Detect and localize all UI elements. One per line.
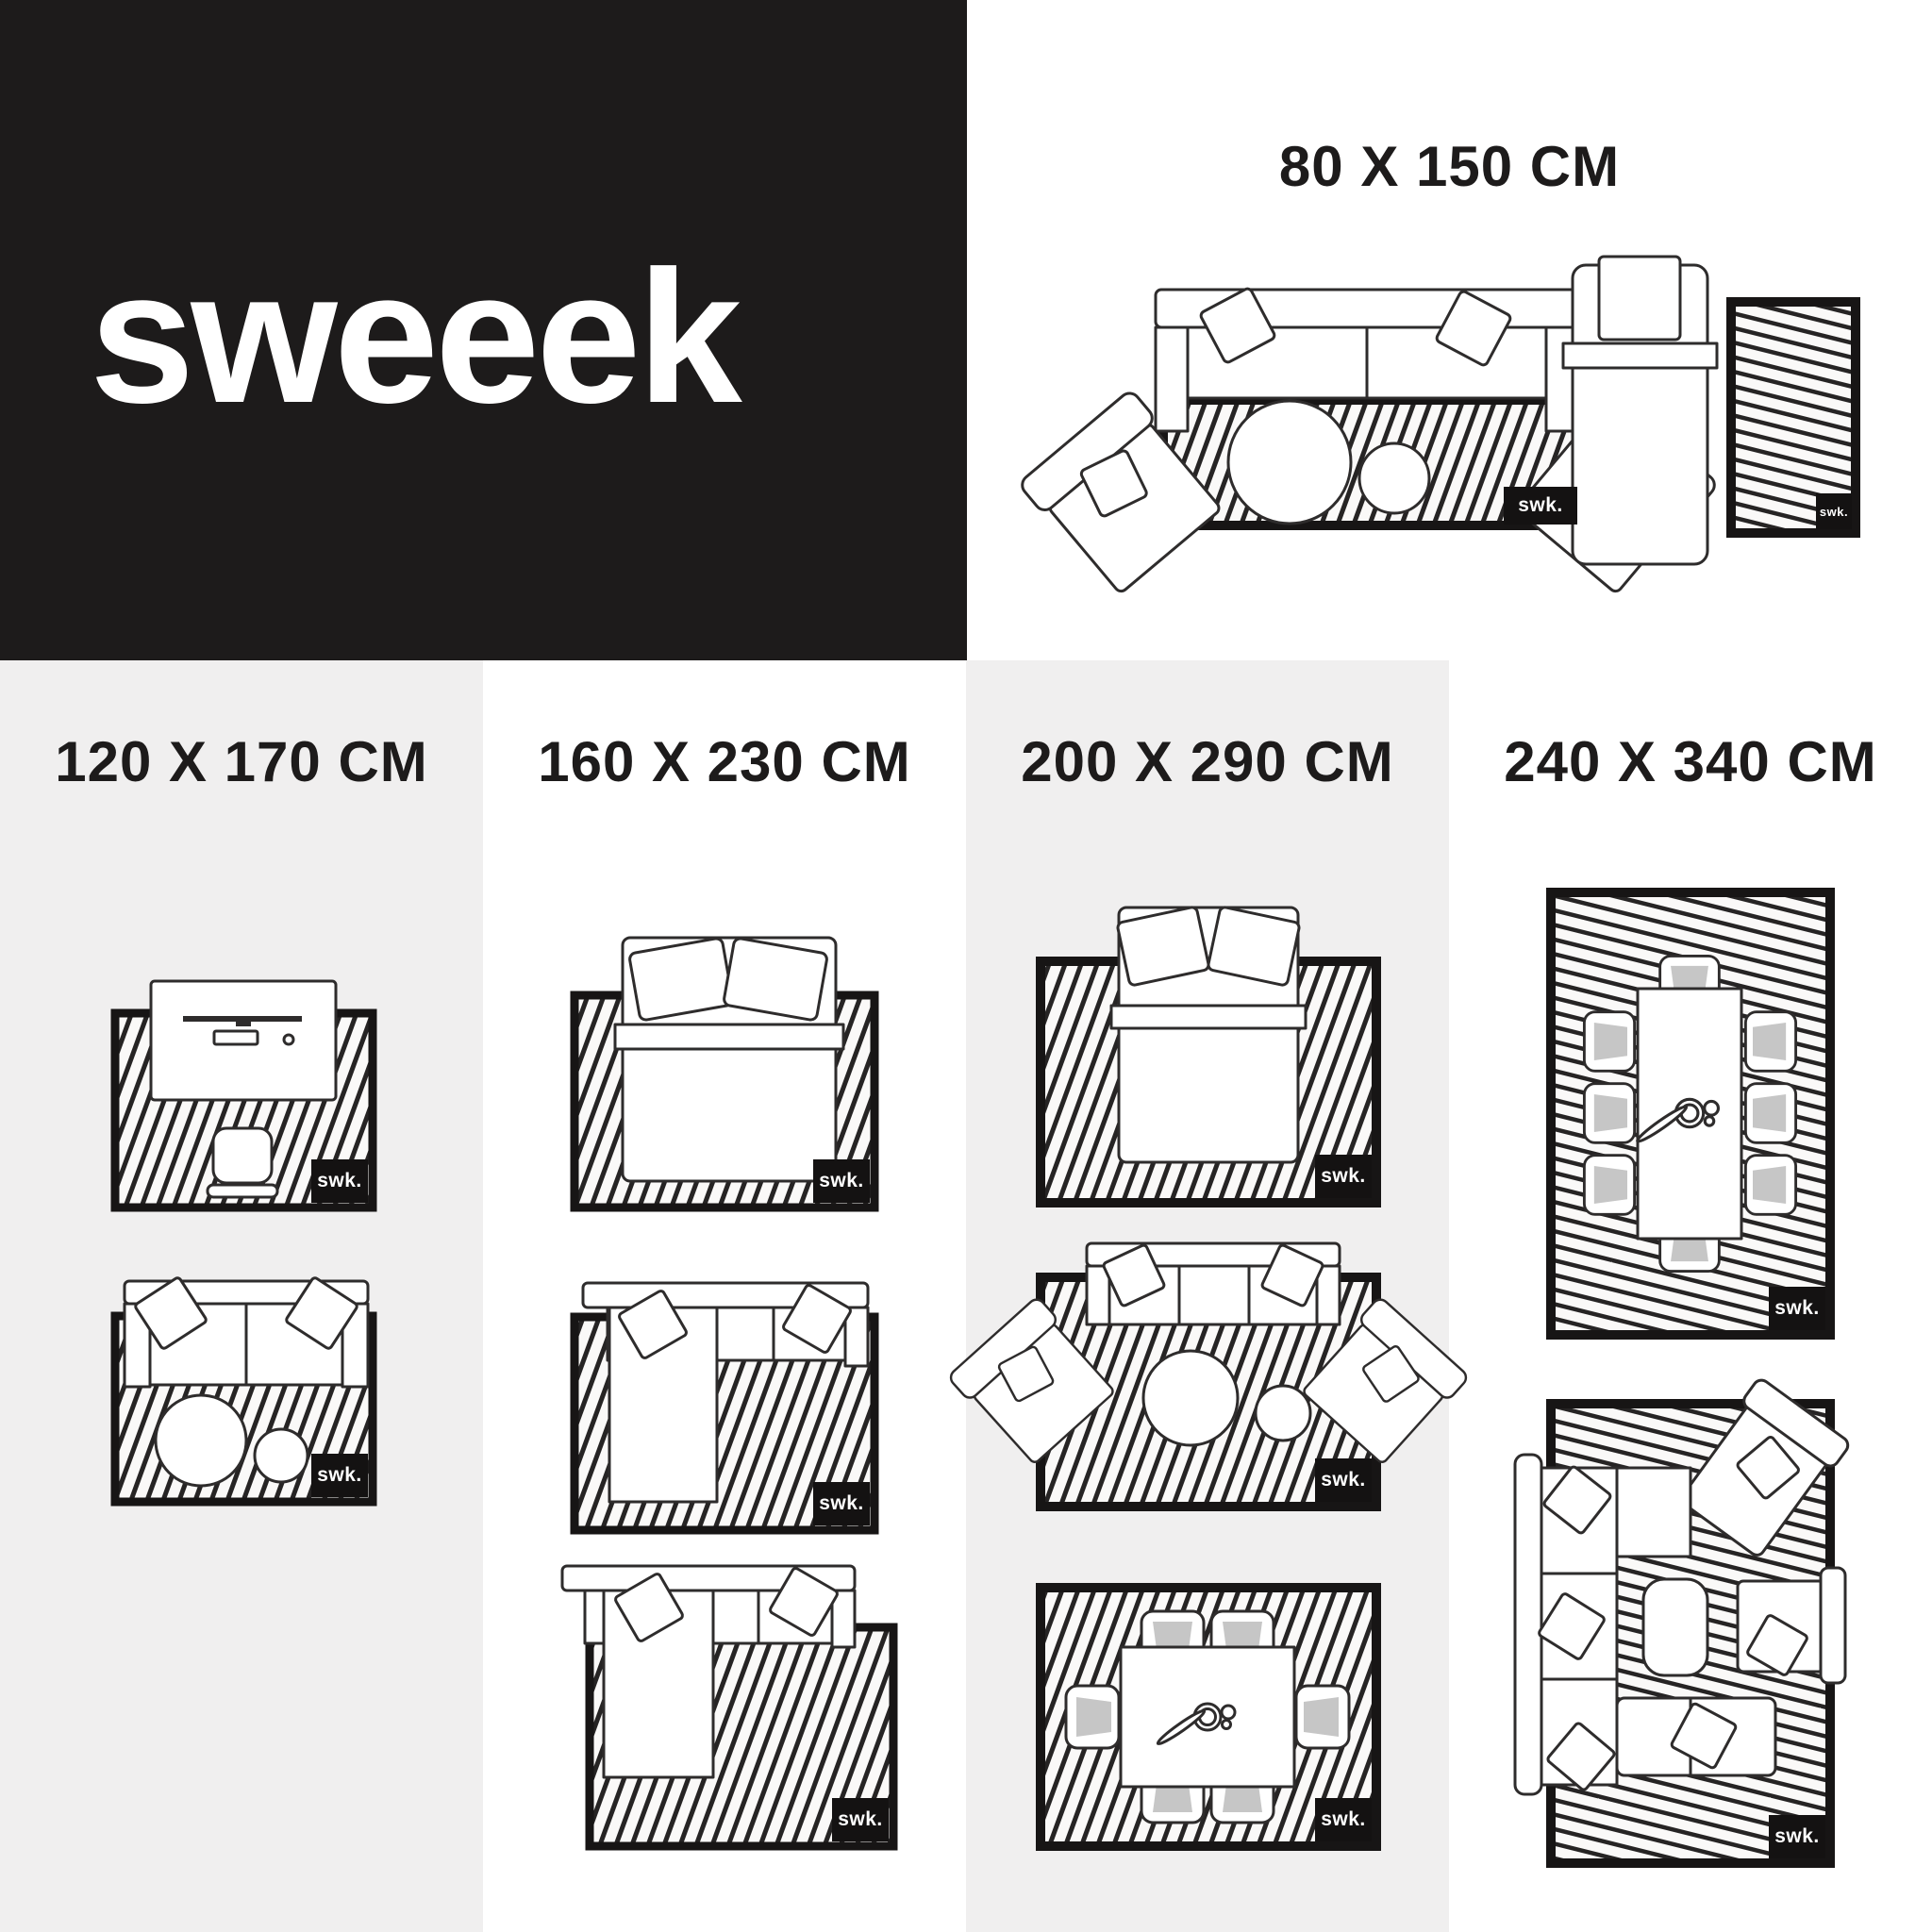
- diagram-240x340-living: [1515, 1377, 1851, 1863]
- brand-badge: swk.: [1315, 1458, 1372, 1502]
- infographic-canvas: sweeek 80 X 150 CM 120 X 170 CM 160 X 23…: [0, 0, 1932, 1932]
- desk-icon: [151, 981, 336, 1100]
- dining-chair-icon: [1066, 1686, 1119, 1748]
- keyboard-icon: [214, 1031, 258, 1044]
- brand-badge: swk.: [813, 1482, 870, 1525]
- brand-badge: swk.: [813, 1159, 870, 1203]
- sofa-icon: [125, 1276, 368, 1387]
- dining-chair-icon: [1745, 1156, 1795, 1215]
- double-bed-icon: [1111, 907, 1306, 1162]
- dining-chair-icon: [1584, 1084, 1634, 1143]
- single-bed-icon: [1563, 257, 1717, 564]
- diagram-artwork: [0, 0, 1932, 1932]
- brand-badge: swk.: [1315, 1798, 1372, 1841]
- brand-badge: swk.: [1769, 1815, 1825, 1858]
- diagram-80x150-bedside: [1563, 257, 1856, 564]
- coffee-table-icon: [1643, 1579, 1707, 1675]
- armchair-icon: [1738, 1568, 1845, 1683]
- mouse-icon: [284, 1035, 293, 1044]
- sofa-icon: [1087, 1243, 1340, 1324]
- diagram-240x340-dining: [1551, 892, 1830, 1335]
- brand-badge: swk.: [1769, 1287, 1825, 1330]
- double-bed-icon: [615, 938, 843, 1181]
- dining-chair-icon: [1584, 1012, 1634, 1072]
- desk-chair-icon: [208, 1128, 277, 1197]
- dining-chair-icon: [1745, 1084, 1795, 1143]
- brand-badge: swk.: [311, 1454, 368, 1497]
- dining-chair-icon: [1296, 1686, 1349, 1748]
- brand-badge: swk.: [1315, 1155, 1372, 1198]
- brand-badge: swk.: [1816, 493, 1852, 529]
- brand-badge: swk.: [1504, 487, 1577, 525]
- dining-chair-icon: [1584, 1156, 1634, 1215]
- brand-badge: swk.: [832, 1798, 889, 1841]
- diagram-200x290-living: [947, 1243, 1469, 1507]
- monitor-icon: [183, 1016, 302, 1022]
- brand-badge: swk.: [311, 1159, 368, 1203]
- dining-chair-icon: [1745, 1012, 1795, 1072]
